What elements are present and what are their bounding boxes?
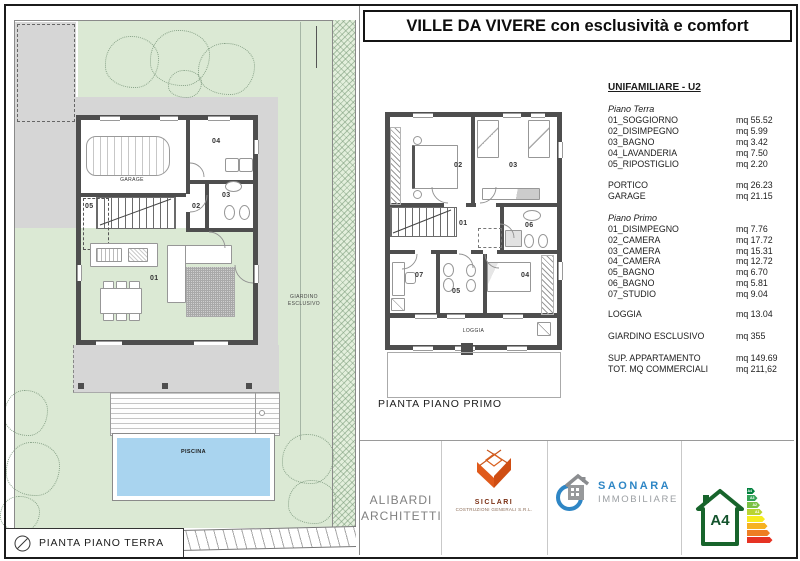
pool-label: PISCINA bbox=[117, 449, 270, 455]
energy-bar bbox=[747, 530, 770, 536]
tree-icon bbox=[4, 390, 48, 436]
energy-bar: A1 bbox=[747, 509, 763, 515]
room-label: 03 bbox=[222, 192, 230, 199]
table-row: SUP. APPARTAMENTOmq 149.69 bbox=[608, 353, 794, 364]
ground-floor-house: 01 02 03 04 05 GARAGE bbox=[76, 115, 258, 345]
title-box: VILLE DA VIVERE con esclusività e comfor… bbox=[363, 10, 792, 42]
area-table: UNIFAMILIARE - U2 Piano Terra 01_SOGGIOR… bbox=[608, 82, 794, 374]
energy-bar bbox=[747, 523, 768, 529]
table-header: UNIFAMILIARE - U2 bbox=[608, 82, 794, 94]
tree-icon bbox=[0, 496, 40, 532]
column bbox=[78, 383, 84, 389]
parking-dashed bbox=[17, 24, 75, 122]
agency-subtitle: IMMOBILIARE bbox=[598, 494, 678, 505]
logo-cell-divider bbox=[681, 441, 682, 555]
table-row: 04_LAVANDERIAmq 7.50 bbox=[608, 147, 794, 158]
deck-divider bbox=[255, 393, 256, 433]
column bbox=[246, 383, 252, 389]
energy-bar bbox=[747, 537, 773, 543]
logo-cell-divider bbox=[547, 441, 548, 555]
energy-scale: A4 A3 A2 A1 bbox=[747, 488, 777, 544]
site-boundary-top bbox=[14, 20, 356, 21]
tree-icon bbox=[6, 442, 60, 496]
energy-bar: A4 bbox=[747, 488, 755, 494]
garden-label: GIARDINO ESCLUSIVO bbox=[281, 294, 327, 308]
builder-name: SICLARI bbox=[443, 499, 545, 506]
table-row: LOGGIAmq 13.04 bbox=[608, 308, 794, 319]
ground-caption: PIANTA PIANO TERRA bbox=[39, 537, 164, 549]
tree-icon bbox=[288, 480, 336, 524]
window bbox=[413, 346, 433, 351]
tree-icon bbox=[198, 43, 255, 95]
section-label: Piano Primo bbox=[608, 213, 794, 224]
energy-bar: A2 bbox=[747, 502, 760, 508]
hedge bbox=[332, 20, 356, 528]
room-label: 01 bbox=[459, 220, 467, 227]
room-label: 02 bbox=[192, 203, 200, 210]
builder-subtitle: COSTRUZIONI GENERALI S.R.L. bbox=[443, 507, 545, 512]
table-row: GARAGEmq 21.15 bbox=[608, 191, 794, 202]
table-row: 01_DISIMPEGNOmq 7.76 bbox=[608, 224, 794, 235]
room-label: 03 bbox=[509, 162, 517, 169]
ground-caption-box: PIANTA PIANO TERRA bbox=[4, 528, 184, 558]
logos-divider-top bbox=[360, 440, 794, 441]
energy-bar: A3 bbox=[747, 495, 758, 501]
right-panel-divider bbox=[359, 4, 360, 555]
site-plan: 01 02 03 04 05 GARAGE PISCINA GIARDINO E… bbox=[0, 0, 360, 561]
table-row: 03_CAMERAmq 15.31 bbox=[608, 245, 794, 256]
room-label: 04 bbox=[521, 272, 529, 279]
room-label: 02 bbox=[454, 162, 462, 169]
table-row: 05_BAGNOmq 6.70 bbox=[608, 267, 794, 278]
architect-name-line1: ALIBARDI bbox=[361, 492, 441, 508]
tree-icon bbox=[282, 434, 334, 484]
table-row: 04_CAMERAmq 12.72 bbox=[608, 256, 794, 267]
table-row: TOT. MQ COMMERCIALImq 211,62 bbox=[608, 364, 794, 375]
door-swings bbox=[385, 112, 562, 318]
fence-line bbox=[300, 22, 301, 440]
energy-class: A4 bbox=[704, 512, 736, 529]
entry-marker bbox=[316, 26, 317, 68]
siclari-mark-icon bbox=[471, 448, 517, 492]
footprint-outline bbox=[387, 352, 561, 398]
loggia-label: LOGGIA bbox=[385, 328, 562, 334]
energy-bar bbox=[747, 516, 765, 522]
logo-cell-divider bbox=[441, 441, 442, 555]
section-label: Piano Terra bbox=[608, 104, 794, 115]
path-right-house bbox=[258, 97, 278, 345]
room-label: 04 bbox=[212, 138, 220, 145]
room-label: 06 bbox=[525, 222, 533, 229]
agency-name: SAONARA bbox=[598, 480, 671, 492]
room-label: 01 bbox=[150, 275, 158, 282]
builder-logo: SICLARI COSTRUZIONI GENERALI S.R.L. bbox=[443, 448, 545, 512]
table-row: 06_BAGNOmq 5.81 bbox=[608, 278, 794, 289]
table-row: 05_RIPOSTIGLIOmq 2.20 bbox=[608, 158, 794, 169]
room-label: 05 bbox=[452, 288, 460, 295]
first-floor-house: LOGGIA 01 02 03 04 05 06 07 bbox=[385, 112, 562, 402]
architect-logo: ALIBARDI ARCHITETTI bbox=[361, 492, 441, 524]
energy-label: A4 A4 A3 A2 A1 bbox=[694, 486, 780, 550]
agency-logo: SAONARA IMMOBILIARE bbox=[554, 468, 678, 514]
door-swings bbox=[76, 115, 258, 345]
room-label: 07 bbox=[415, 272, 423, 279]
table-row: 02_DISIMPEGNOmq 5.99 bbox=[608, 126, 794, 137]
pool: PISCINA bbox=[113, 434, 274, 500]
column bbox=[162, 383, 168, 389]
saonara-house-icon bbox=[554, 472, 594, 514]
table-row: PORTICOmq 26.23 bbox=[608, 180, 794, 191]
architect-name-line2: ARCHITETTI bbox=[361, 508, 441, 524]
garage-label: GARAGE bbox=[102, 177, 162, 183]
tree-icon bbox=[168, 70, 202, 98]
north-arrow-icon bbox=[14, 535, 31, 552]
page-title: VILLE DA VIVERE con esclusività e comfor… bbox=[365, 12, 790, 40]
table-row: 01_SOGGIORNOmq 55.52 bbox=[608, 115, 794, 126]
window bbox=[507, 346, 527, 351]
table-row: 02_CAMERAmq 17.72 bbox=[608, 234, 794, 245]
room-label: 05 bbox=[85, 203, 93, 210]
table-row: GIARDINO ESCLUSIVOmq 355 bbox=[608, 331, 794, 342]
pool-ladder-icon bbox=[259, 410, 265, 416]
table-row: 07_STUDIOmq 9.04 bbox=[608, 288, 794, 299]
path-above-house bbox=[76, 97, 278, 115]
table-row: 03_BAGNOmq 3.42 bbox=[608, 137, 794, 148]
first-floor-caption: PIANTA PIANO PRIMO bbox=[378, 398, 502, 410]
